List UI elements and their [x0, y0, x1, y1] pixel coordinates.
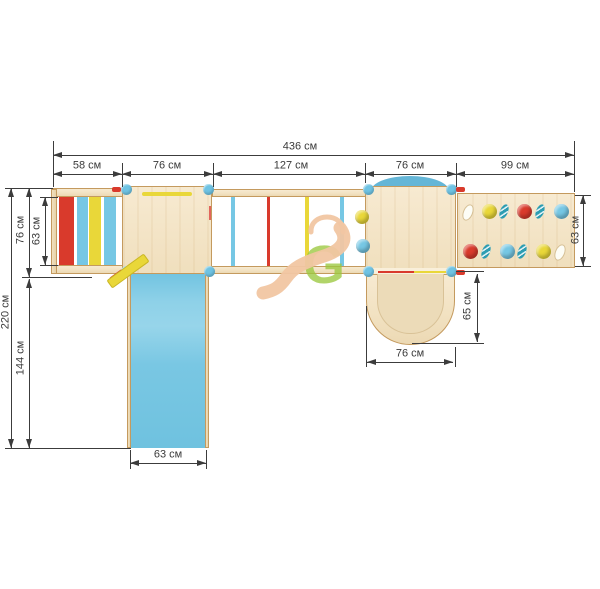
arrow — [42, 197, 48, 206]
corner-post — [363, 266, 374, 277]
dim-line-wall-depth — [583, 195, 584, 266]
arrow — [565, 152, 574, 158]
dim-label-wall-depth: 63 см — [571, 216, 582, 244]
arrow — [447, 171, 456, 177]
bridge-rung — [231, 197, 235, 266]
dim-line-total — [53, 155, 574, 156]
red-peg — [456, 187, 465, 192]
arrow — [42, 256, 48, 265]
arrow — [356, 171, 365, 177]
ext-line — [412, 343, 484, 344]
arrow — [580, 257, 586, 266]
ext-line — [22, 277, 92, 278]
dim-line-ladder-inner — [45, 197, 46, 265]
arrow — [444, 359, 453, 365]
bridge-rung — [267, 197, 270, 266]
dim-label-tunnel-width: 76 см — [396, 349, 424, 360]
arrow — [26, 188, 32, 197]
bridge-rung — [305, 197, 309, 266]
ext-line — [366, 306, 367, 367]
arrow — [367, 359, 376, 365]
bridge-top-rail — [212, 189, 366, 197]
dim-label-left-lower: 144 см — [16, 341, 27, 375]
arrow — [53, 171, 62, 177]
arrow — [197, 460, 206, 466]
dim-label-seg1: 58 см — [73, 161, 101, 172]
arrow — [565, 171, 574, 177]
wall-hold-ball — [554, 204, 569, 219]
ladder-bottom-rail — [51, 265, 123, 274]
arrow — [26, 279, 32, 288]
dim-label-seg5: 99 см — [501, 161, 529, 172]
dim-label-seg3: 127 см — [274, 161, 308, 172]
playground-plan-diagram: G 436 см 58 см 76 см 127 см 76 см 99 см … — [0, 0, 600, 589]
watermark-logo: G — [0, 0, 600, 589]
entrance-red-line — [378, 271, 414, 273]
arrow — [8, 188, 14, 197]
ext-line — [574, 141, 575, 192]
dim-line-left-lower — [29, 279, 30, 448]
dim-line-segments — [53, 174, 574, 175]
dim-label-tunnel-depth: 65 см — [463, 292, 474, 320]
bridge-bottom-rail — [212, 266, 366, 274]
ext-line — [455, 347, 456, 367]
arrow — [474, 274, 480, 283]
arrow — [213, 171, 222, 177]
arrow — [122, 171, 131, 177]
watermark-letter-g: G — [303, 235, 345, 295]
entrance-yellow-line — [414, 271, 447, 273]
ext-line — [456, 271, 484, 272]
platform2-left-hold — [356, 239, 370, 253]
corner-post — [363, 184, 374, 195]
ext-line — [40, 265, 58, 266]
dim-line-tunnel-depth — [477, 274, 478, 342]
ext-line — [53, 141, 54, 187]
wall-hold-ball — [500, 244, 515, 259]
corner-post — [204, 266, 215, 277]
ladder-rung — [59, 197, 74, 265]
arrow — [474, 333, 480, 342]
arrow — [204, 171, 213, 177]
arrow — [580, 195, 586, 204]
arrow — [8, 439, 14, 448]
arrow — [130, 460, 139, 466]
wall-hold-ball — [463, 244, 478, 259]
wall-hold-ball — [517, 204, 532, 219]
ladder-rung — [104, 197, 116, 265]
watermark-handle-arc — [311, 217, 343, 232]
dim-line-slide-width — [130, 463, 206, 464]
dim-label-slide-width: 63 см — [154, 450, 182, 461]
wall-hold-ball — [482, 204, 497, 219]
wall-hold-ball — [536, 244, 551, 259]
slide-surface — [131, 274, 205, 448]
ladder-rung — [77, 197, 88, 265]
slide-rail-right — [205, 274, 209, 448]
platform-1-red-mark — [209, 206, 211, 220]
arrow — [113, 171, 122, 177]
platform2-left-hold — [355, 210, 369, 224]
platform-1-yellow-step — [142, 192, 192, 196]
ext-line — [206, 450, 207, 469]
dim-label-ladder-inner: 63 см — [32, 217, 43, 245]
dim-label-seg2: 76 см — [153, 161, 181, 172]
ladder-left-edge — [51, 189, 57, 274]
dim-label-seg4: 76 см — [396, 161, 424, 172]
watermark-slide-swoosh — [263, 228, 344, 293]
platform-2 — [365, 186, 456, 274]
ext-line — [5, 448, 131, 449]
arrow — [26, 439, 32, 448]
dim-label-left-total: 220 см — [1, 295, 12, 329]
arrow — [53, 152, 62, 158]
arrow — [456, 171, 465, 177]
ext-line — [575, 266, 591, 267]
arrow — [26, 268, 32, 277]
red-peg — [112, 187, 121, 192]
dim-label-total: 436 см — [283, 142, 317, 153]
bridge-rung — [340, 197, 344, 266]
arrow — [365, 171, 374, 177]
dim-label-left-upper: 76 см — [16, 216, 27, 244]
ladder-rung — [89, 197, 101, 265]
dim-line-tunnel-width — [367, 362, 453, 363]
